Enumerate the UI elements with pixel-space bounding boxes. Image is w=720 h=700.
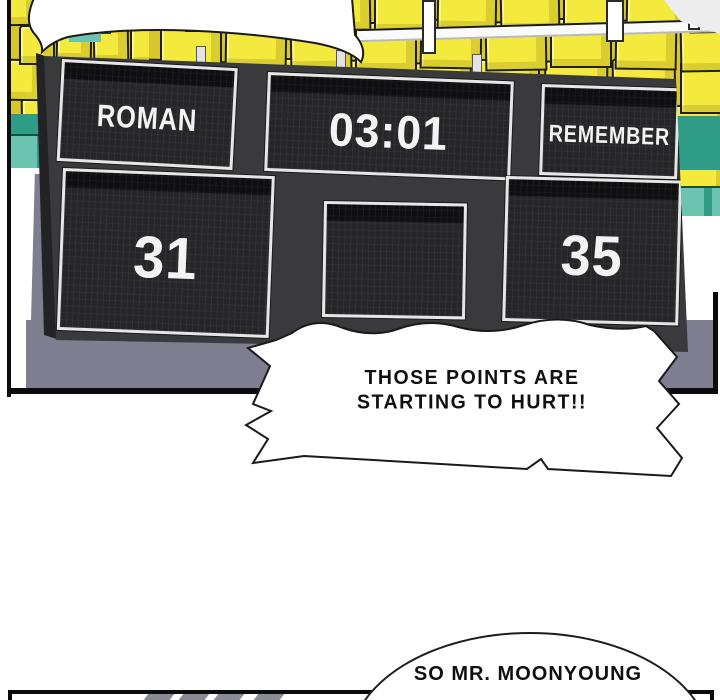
panel-border-right — [713, 292, 718, 394]
shout-line-1: THOSE POINTS ARE — [312, 365, 632, 390]
scoreboard-away-score-panel: 35 — [502, 176, 682, 326]
panel-border-left — [7, 0, 11, 397]
home-score: 31 — [132, 213, 199, 293]
scoreboard-clock-panel: 03:01 — [264, 72, 514, 180]
shout-line-2: STARTING TO HURT!! — [312, 390, 632, 415]
railing-post — [422, 0, 436, 54]
motion-stripe — [246, 694, 285, 700]
motion-stripe — [171, 694, 210, 700]
away-team-name: REMEMBER — [548, 112, 670, 152]
shout-dialogue: THOSE POINTS ARE STARTING TO HURT!! — [312, 365, 632, 415]
comic-panel-page: ROMAN 03:01 REMEMBER 31 35 THOSE POINTS … — [0, 0, 720, 700]
scoreboard-home-name-panel: ROMAN — [57, 59, 238, 170]
motion-stripe — [136, 694, 175, 700]
railing-post — [606, 0, 624, 42]
away-score: 35 — [560, 212, 624, 290]
scoreboard-blank-panel — [322, 201, 467, 319]
game-clock: 03:01 — [328, 91, 449, 161]
bottom-dialogue: SO MR. MOONYOUNG — [349, 663, 707, 686]
scoreboard-away-name-panel: REMEMBER — [539, 84, 680, 179]
motion-stripe — [206, 694, 245, 700]
home-team-name: ROMAN — [96, 90, 198, 139]
